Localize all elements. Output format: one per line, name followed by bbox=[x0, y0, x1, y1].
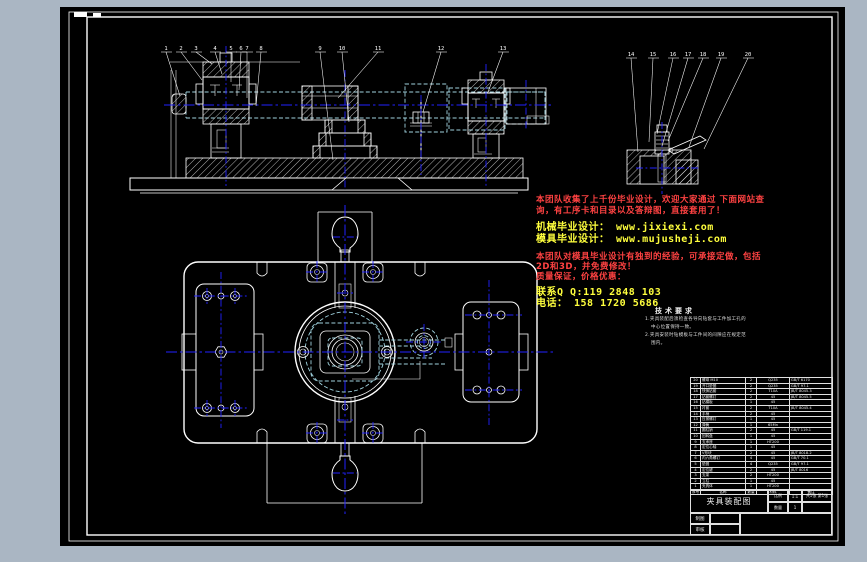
balloon-label: 15 bbox=[650, 52, 657, 58]
balloon-label: 14 bbox=[628, 52, 635, 58]
watermark-line: 询，有工序卡和目录以及答辩图，直接套用了！ bbox=[536, 204, 725, 216]
tech-requirement-item: 中心位置保持一致。 bbox=[651, 324, 694, 330]
centering-mark bbox=[93, 13, 101, 17]
balloon-label: 20 bbox=[745, 52, 752, 58]
tech-requirement-item: 1.夹具装配后须检查各导向钻套与工件加工孔的 bbox=[645, 316, 746, 322]
tech-requirement-item: 围内。 bbox=[651, 340, 665, 346]
watermark-line: 质量保证，价格优惠： bbox=[536, 270, 626, 282]
screenshot-root: { "window": { "background": "#aab6c3", "… bbox=[0, 0, 867, 562]
balloon-label: 19 bbox=[718, 52, 725, 58]
balloon-label: 11 bbox=[375, 46, 382, 52]
drawn-by-value bbox=[710, 513, 740, 524]
centering-mark bbox=[74, 12, 87, 17]
balloon-label: 6 bbox=[239, 46, 242, 52]
org-cell bbox=[740, 513, 832, 535]
qty-value: 1 bbox=[788, 502, 802, 513]
title-block: 夹具装配图 比例 1:1 共1张 第1张 数量 1 制图 审核 bbox=[690, 490, 832, 535]
bom-table: 20螺母 M102Q235GB/T 617019开口垫圈2Q235GB/T 97… bbox=[690, 377, 833, 495]
checked-by-value bbox=[710, 524, 740, 535]
tech-requirements-title: 技术要求 bbox=[655, 306, 695, 316]
detail-slot bbox=[640, 156, 664, 184]
drawn-by-label: 制图 bbox=[690, 513, 710, 524]
watermark-link: 模具毕业设计： www.mujusheji.com bbox=[536, 230, 727, 245]
scale-value: 1:1 bbox=[788, 490, 802, 502]
qty-label: 数量 bbox=[768, 502, 788, 513]
balloon-label: 7 bbox=[245, 46, 248, 52]
tech-requirement-item: 2.夹具安装时钻模板与工件间的间隙应在规定范 bbox=[645, 332, 746, 338]
balloon-label: 9 bbox=[318, 46, 321, 52]
material-cell bbox=[802, 502, 832, 513]
balloon-label: 13 bbox=[500, 46, 507, 52]
balloon-label: 16 bbox=[670, 52, 677, 58]
balloon-label: 1 bbox=[164, 46, 167, 52]
checked-by-label: 审核 bbox=[690, 524, 710, 535]
balloon-label: 10 bbox=[339, 46, 346, 52]
balloon-label: 2 bbox=[179, 46, 182, 52]
bom-parts-list: 20螺母 M102Q235GB/T 617019开口垫圈2Q235GB/T 97… bbox=[690, 377, 832, 495]
balloon-label: 8 bbox=[259, 46, 262, 52]
shaft-end-cap bbox=[172, 94, 186, 114]
detail-step bbox=[676, 160, 698, 184]
scale-label: 比例 bbox=[768, 490, 788, 502]
balloon-label: 18 bbox=[700, 52, 707, 58]
balloon-label: 17 bbox=[685, 52, 692, 58]
drawing-title: 夹具装配图 bbox=[690, 490, 768, 513]
balloon-label: 3 bbox=[194, 46, 197, 52]
watermark-phone: 电话： 158 1720 5686 bbox=[536, 294, 659, 309]
balloon-label: 12 bbox=[438, 46, 445, 52]
balloon-label: 5 bbox=[229, 46, 232, 52]
sheet-info: 共1张 第1张 bbox=[802, 490, 832, 502]
